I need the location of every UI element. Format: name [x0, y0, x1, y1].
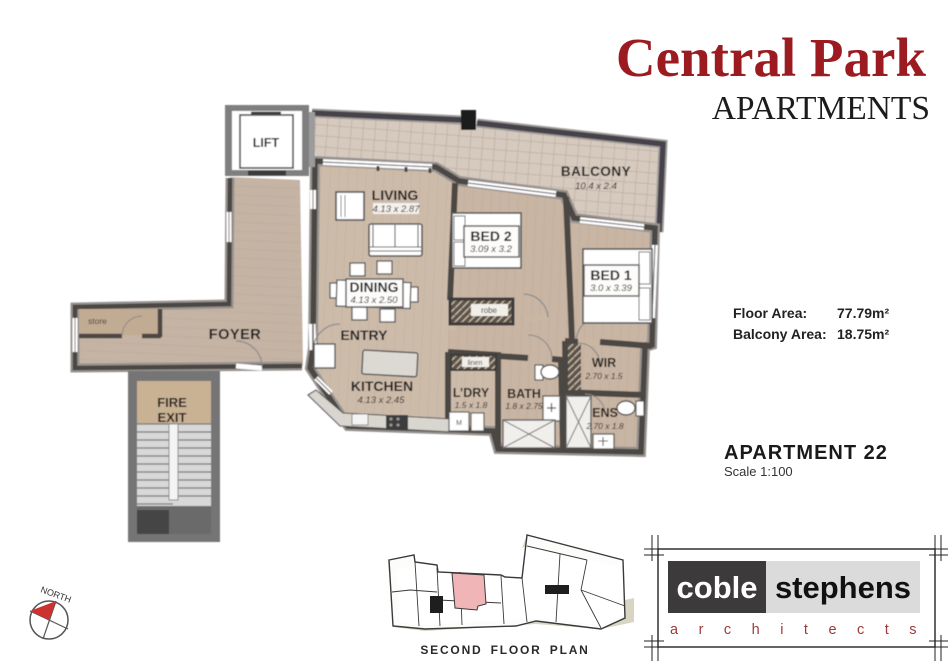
svg-text:LIVING: LIVING	[372, 187, 419, 203]
svg-text:SECOND FLOOR PLAN: SECOND FLOOR PLAN	[420, 643, 589, 657]
svg-text:EXIT: EXIT	[158, 410, 187, 425]
svg-text:2.70 x 1.5: 2.70 x 1.5	[584, 371, 623, 381]
svg-text:APARTMENTS: APARTMENTS	[712, 90, 930, 127]
svg-text:stephens: stephens	[775, 570, 911, 605]
svg-text:WIR: WIR	[592, 356, 616, 370]
svg-text:LIFT: LIFT	[253, 136, 280, 150]
svg-text:M: M	[456, 420, 462, 427]
svg-text:4.13 x 2.87: 4.13 x 2.87	[372, 204, 420, 215]
svg-text:Balcony Area:: Balcony Area:	[733, 326, 827, 342]
svg-text:store: store	[88, 316, 107, 326]
svg-text:Scale 1:100: Scale 1:100	[724, 464, 793, 479]
svg-text:1.8 x 2.75: 1.8 x 2.75	[505, 401, 543, 411]
svg-text:APARTMENT 22: APARTMENT 22	[724, 442, 888, 464]
svg-text:3.09 x 3.2: 3.09 x 3.2	[470, 244, 512, 255]
svg-text:18.75m²: 18.75m²	[837, 326, 889, 342]
svg-text:BED 1: BED 1	[590, 267, 631, 283]
svg-text:FOYER: FOYER	[209, 327, 261, 343]
svg-text:ENS: ENS	[592, 406, 618, 420]
svg-text:architects: architects	[670, 622, 937, 638]
svg-text:linen: linen	[468, 360, 483, 367]
svg-text:ENTRY: ENTRY	[341, 327, 389, 343]
svg-text:L’DRY: L’DRY	[453, 386, 490, 400]
svg-text:FIRE: FIRE	[157, 395, 187, 410]
svg-text:77.79m²: 77.79m²	[837, 305, 889, 321]
svg-text:Floor Area:: Floor Area:	[733, 305, 807, 321]
svg-text:BED 2: BED 2	[470, 228, 511, 244]
svg-text:BATH: BATH	[507, 387, 541, 401]
svg-text:2.70 x 1.8: 2.70 x 1.8	[585, 421, 624, 431]
svg-text:1.5 x 1.8: 1.5 x 1.8	[455, 400, 488, 410]
svg-text:4.13 x 2.50: 4.13 x 2.50	[350, 295, 398, 306]
svg-text:DINING: DINING	[350, 279, 399, 295]
svg-text:4.13 x 2.45: 4.13 x 2.45	[357, 395, 405, 406]
svg-text:KITCHEN: KITCHEN	[351, 378, 413, 394]
svg-text:3.0 x 3.39: 3.0 x 3.39	[590, 283, 632, 294]
svg-text:10.4 x 2.4: 10.4 x 2.4	[575, 181, 617, 192]
svg-text:BALCONY: BALCONY	[561, 164, 631, 179]
svg-text:robe: robe	[481, 306, 498, 315]
svg-text:coble: coble	[677, 570, 758, 605]
svg-text:Central Park: Central Park	[616, 27, 926, 88]
